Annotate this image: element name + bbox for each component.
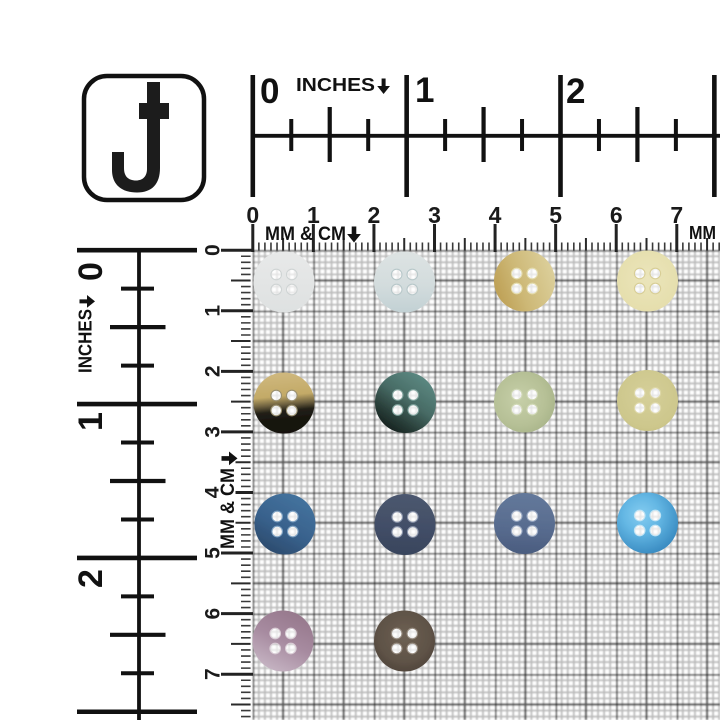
svg-text:2: 2 bbox=[368, 202, 381, 228]
svg-text:0: 0 bbox=[202, 244, 225, 256]
svg-text:6: 6 bbox=[610, 202, 623, 228]
svg-text:1: 1 bbox=[415, 71, 434, 110]
svg-text:7: 7 bbox=[202, 668, 225, 680]
svg-text:1: 1 bbox=[202, 305, 225, 317]
svg-text:MM & CM: MM & CM bbox=[218, 468, 239, 549]
svg-text:4: 4 bbox=[489, 202, 502, 228]
svg-text:0: 0 bbox=[246, 202, 259, 228]
svg-text:2: 2 bbox=[72, 569, 110, 588]
svg-text:2: 2 bbox=[566, 72, 585, 111]
svg-text:5: 5 bbox=[549, 202, 562, 228]
svg-text:7: 7 bbox=[670, 202, 683, 228]
svg-text:MM: MM bbox=[689, 223, 716, 243]
svg-text:0: 0 bbox=[260, 72, 279, 111]
svg-text:3: 3 bbox=[202, 426, 225, 438]
svg-text:2: 2 bbox=[202, 365, 225, 377]
svg-text:6: 6 bbox=[202, 608, 225, 620]
svg-text:1: 1 bbox=[72, 412, 110, 431]
svg-text:MM & CM: MM & CM bbox=[265, 224, 346, 245]
svg-text:INCHES: INCHES bbox=[296, 75, 375, 95]
svg-text:INCHES: INCHES bbox=[76, 309, 96, 373]
svg-text:3: 3 bbox=[428, 202, 441, 228]
svg-text:0: 0 bbox=[72, 262, 110, 281]
